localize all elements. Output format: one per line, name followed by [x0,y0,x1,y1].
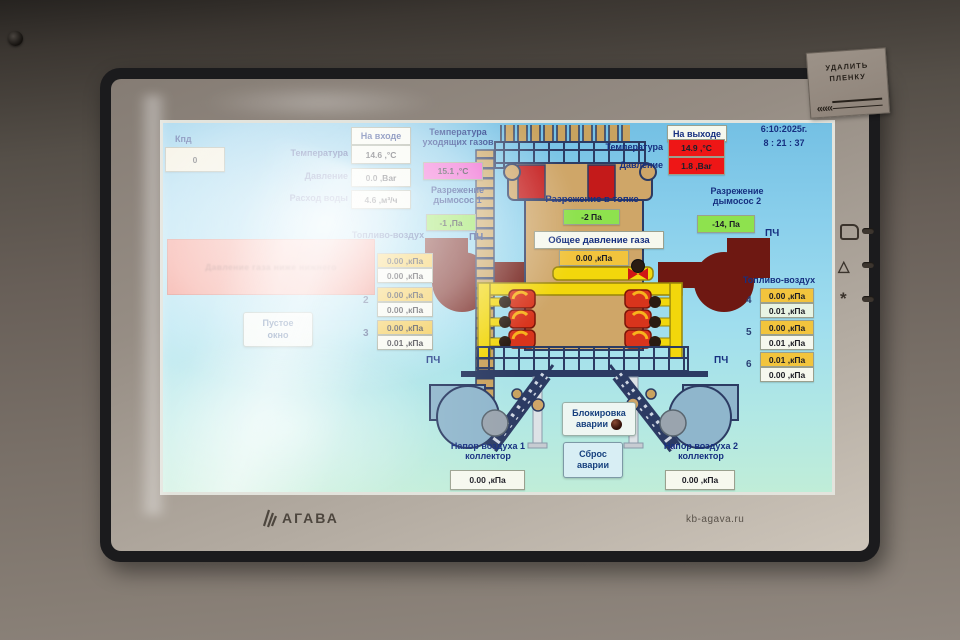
fuel-air-left-title: Топливо-воздух [330,230,446,240]
burners-right [625,290,670,348]
draft-fan2-label: Разрежениедымосос 2 [691,186,783,207]
inlet-temp-label: Температура [258,148,348,158]
inlet-pressure-label: Давление [258,171,348,181]
date-display: 6:10:2025г. [738,124,830,134]
fuel-air-r3-top: 0.01 ,кПа [760,352,814,367]
fuel-air-r1-top: 0.00 ,кПа [760,288,814,303]
air-collector1-label: Напор воздуха 1коллектор [441,441,535,462]
draft-fan2-value: -14, Па [697,215,755,233]
brand-flame-icon [260,508,278,528]
efficiency-value: 0 [165,147,225,172]
hmi-screen: Кпд 0 На входе Температура 14.6 ,°C Давл… [163,123,832,492]
sticker-bars [832,98,882,109]
furnace-draft-value: -2 Па [563,209,620,225]
gas-valve-wheel [632,260,645,273]
fuel-air-right-title: Топливо-воздух [729,275,829,285]
air-collector2-label: Напор воздуха 2коллектор [656,441,746,462]
drain-valve-left [532,399,544,411]
fuel-air-r3-bottom: 0.00 ,кПа [760,367,814,382]
warning-triangle-icon: △ [838,257,850,275]
gas-pressure-label: Общее давление газа [534,231,664,249]
display-icon [840,224,859,240]
flue-gas-value: 15.1 ,°C [423,162,483,180]
fuel-air-l2-bottom: 0.00 ,кПа [377,302,433,317]
flue-gas-label: Температурауходящих газов [406,127,510,148]
sticker-arrows: ««« [816,102,832,115]
glare-bottom-left [163,333,443,492]
time-display: 8 : 21 : 37 [738,138,830,148]
inlet-flow-value: 4.6 ,м³/ч [351,190,411,209]
fuel-air-r2-bottom: 0.01 ,кПа [760,335,814,350]
drum-red-column-left [518,165,545,199]
burners-left [490,290,535,348]
fuel-air-l3-num: 3 [363,328,369,339]
fuel-air-r3-num: 6 [746,359,752,370]
alarm-led [611,419,622,430]
drum-end-left [504,164,520,180]
brand-name: АГАВА [282,510,339,526]
fuel-air-r1-num: 4 [746,295,752,306]
inlet-pressure-value: 0.0 ,Bar [351,168,411,187]
vfd-label-right-bottom: ПЧ [714,355,728,367]
gas-pressure-value: 0.00 ,кПа [559,250,629,266]
inlet-header: На входе [351,127,411,145]
alarm-block-indicator[interactable]: Блокировка аварии [562,402,636,436]
outlet-temp-label: Температура [573,142,663,152]
fuel-air-r2-top: 0.00 ,кПа [760,320,814,335]
vfd-label-right-top: ПЧ [765,228,779,240]
wall-screw [8,31,23,46]
display-led [862,228,874,234]
brand-website: kb-agava.ru [686,514,744,525]
warning-led [862,262,874,268]
air-collector2-value: 0.00 ,кПа [665,470,735,490]
outlet-pressure-value: 1.8 ,Bar [668,157,725,175]
efficiency-label: Кпд [175,134,192,144]
fuel-air-r1-bottom: 0.01 ,кПа [760,303,814,318]
alarm-banner: Давление газа ниже нижнего [167,239,375,295]
empty-window-button[interactable]: Пустоеокно [243,312,313,347]
fuel-air-l2-num: 2 [363,295,369,306]
air-collector1-value: 0.00 ,кПа [450,470,525,490]
inlet-temp-value: 14.6 ,°C [351,145,411,164]
fuel-air-l1-bottom: 0.00 ,кПа [377,268,433,283]
draft-fan1-value: -1 ,Па [426,214,476,231]
vfd-label-left-bottom: ПЧ [426,355,440,367]
asterisk-icon: * [840,289,847,309]
draft-fan1-label: Разрежениедымосос 1 [415,185,500,206]
platform-deck [461,371,708,377]
hmi-panel: Кпд 0 На входе Температура 14.6 ,°C Давл… [100,68,880,562]
outlet-pressure-label: Давление [573,160,663,170]
outlet-temp-value: 14.9 ,°C [668,139,725,157]
fuel-air-l3-bottom: 0.01 ,кПа [377,335,433,350]
furnace-draft-label: Разрежение в топке [536,195,648,206]
alarm-reset-button[interactable]: Сбросаварии [563,442,623,478]
boiler-top-tubes [500,125,630,143]
fuel-air-r2-num: 5 [746,327,752,338]
platform-railing [478,347,688,371]
fuel-air-l3-top: 0.00 ,кПа [377,320,433,335]
fuel-air-l1-top: 0.00 ,кПа [377,253,433,268]
inlet-flow-label: Расход воды [258,193,348,203]
remove-film-sticker: УДАЛИТЬ ПЛЕНКУ ««« [806,47,890,118]
fuel-air-l2-top: 0.00 ,кПа [377,287,433,302]
vfd-label-left-top: ПЧ [469,232,483,244]
asterisk-led [862,296,874,302]
